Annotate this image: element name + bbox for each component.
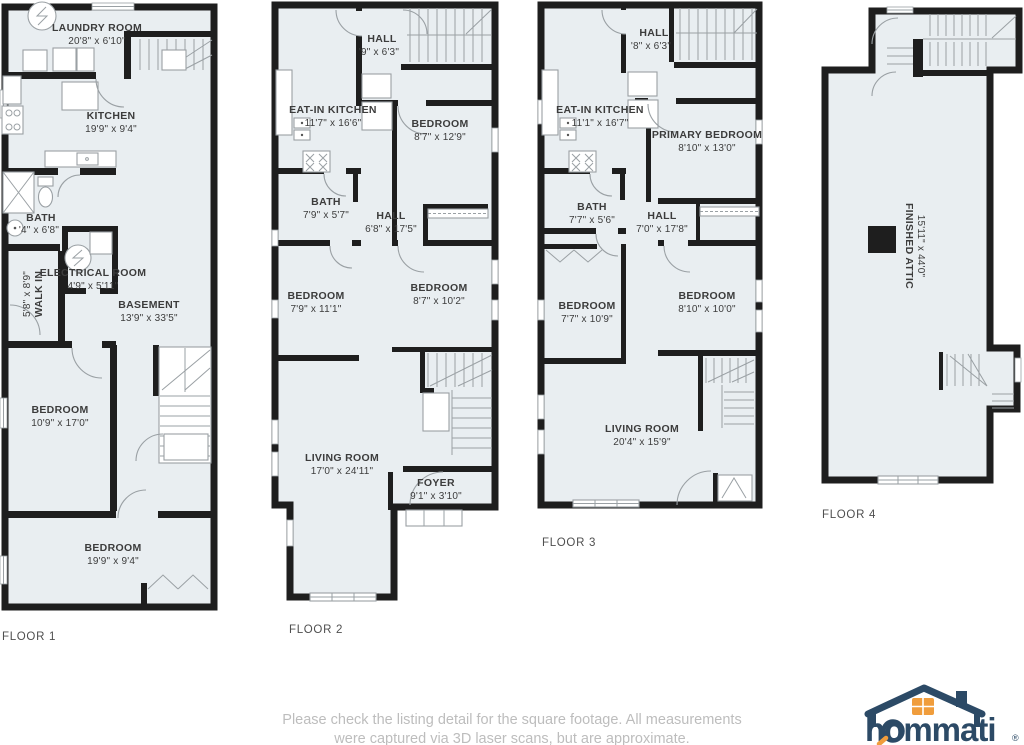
floor-3-plan: HALL '8" x 6'3" EAT-IN KITCHEN 11'1" x 1… bbox=[536, 0, 764, 512]
room-label: BEDROOM bbox=[410, 282, 467, 294]
floorplan-canvas: LAUNDRY ROOM 20'8" x 6'10" KITCHEN 19'9"… bbox=[0, 0, 1024, 745]
svg-text:8'10" x 10'0": 8'10" x 10'0" bbox=[678, 304, 736, 315]
room-label: BEDROOM bbox=[31, 404, 88, 416]
floor-4-plan: FINISHED ATTIC 15'11" x 44'0" bbox=[820, 6, 1024, 488]
room-label: BATH bbox=[577, 201, 607, 213]
room-label: BEDROOM bbox=[84, 542, 141, 554]
svg-text:7'7" x 10'9": 7'7" x 10'9" bbox=[561, 314, 613, 325]
svg-text:7'9" x 5'7": 7'9" x 5'7" bbox=[303, 210, 349, 221]
room-label: ELECTRICAL ROOM bbox=[40, 267, 147, 279]
floor-2-plan: HALL '9" x 6'3" EAT-IN KITCHEN 11'7" x 1… bbox=[270, 0, 502, 610]
floor-1-plan: LAUNDRY ROOM 20'8" x 6'10" KITCHEN 19'9"… bbox=[0, 0, 220, 624]
svg-text:FINISHED ATTIC: FINISHED ATTIC bbox=[903, 203, 915, 289]
room-label: LAUNDRY ROOM bbox=[52, 22, 142, 34]
room-label: HALL bbox=[376, 210, 406, 222]
stove-icon bbox=[2, 106, 23, 134]
room-label: HALL bbox=[647, 210, 677, 222]
svg-text:19'9" x 9'4": 19'9" x 9'4" bbox=[85, 124, 137, 135]
room-label: BATH bbox=[26, 212, 56, 224]
svg-text:7'7" x 5'6": 7'7" x 5'6" bbox=[569, 215, 615, 226]
svg-text:'8" x 6'3": '8" x 6'3" bbox=[631, 41, 671, 52]
room-label: BEDROOM bbox=[558, 300, 615, 312]
room-label: LIVING ROOM bbox=[605, 423, 679, 435]
shower-icon bbox=[3, 172, 34, 213]
room-label: EAT-IN KITCHEN bbox=[289, 104, 377, 116]
room-label: BEDROOM bbox=[678, 290, 735, 302]
room-label: BASEMENT bbox=[118, 299, 180, 311]
stove-icon bbox=[303, 151, 330, 172]
room-label: BATH bbox=[311, 196, 341, 208]
svg-text:13'9" x 33'5": 13'9" x 33'5" bbox=[120, 313, 178, 324]
room-label: LIVING ROOM bbox=[305, 452, 379, 464]
chimney bbox=[868, 226, 896, 253]
svg-text:5'8" x 8'9": 5'8" x 8'9" bbox=[22, 271, 33, 317]
registered-mark: ® bbox=[1012, 733, 1019, 743]
floor-2-caption: FLOOR 2 bbox=[289, 624, 343, 636]
floor-1-caption: FLOOR 1 bbox=[2, 631, 56, 643]
svg-text:8'7" x 10'2": 8'7" x 10'2" bbox=[413, 296, 465, 307]
svg-text:7'0" x 17'8": 7'0" x 17'8" bbox=[636, 224, 688, 235]
hommati-logo: hommati ® bbox=[860, 681, 1024, 745]
floor-1-mid-stairs bbox=[159, 347, 211, 463]
svg-text:'4" x 6'8": '4" x 6'8" bbox=[19, 225, 59, 236]
room-label: EAT-IN KITCHEN bbox=[556, 104, 644, 116]
room-label: PRIMARY BEDROOM bbox=[652, 129, 762, 141]
svg-text:11'1" x 16'7": 11'1" x 16'7" bbox=[572, 118, 629, 129]
svg-text:20'4" x 15'9": 20'4" x 15'9" bbox=[613, 437, 671, 448]
svg-text:17'0" x 24'11": 17'0" x 24'11" bbox=[311, 466, 374, 477]
room-label: BEDROOM bbox=[287, 290, 344, 302]
svg-text:19'9" x 9'4": 19'9" x 9'4" bbox=[87, 556, 139, 567]
svg-text:11'7" x 16'6": 11'7" x 16'6" bbox=[305, 118, 362, 129]
room-label: BEDROOM bbox=[411, 118, 468, 130]
stove-icon bbox=[569, 151, 596, 172]
room-label: KITCHEN bbox=[87, 110, 136, 122]
toilet-icon bbox=[38, 177, 53, 207]
room-label: HALL bbox=[367, 33, 397, 45]
svg-text:10'9" x 17'0": 10'9" x 17'0" bbox=[31, 418, 89, 429]
room-label: FOYER bbox=[417, 477, 455, 489]
floor-4-caption: FLOOR 4 bbox=[822, 509, 876, 521]
svg-text:7'9" x 11'1": 7'9" x 11'1" bbox=[291, 304, 342, 315]
svg-text:20'8" x 6'10": 20'8" x 6'10" bbox=[68, 36, 126, 47]
svg-text:'9" x 6'3": '9" x 6'3" bbox=[359, 47, 399, 58]
floor-3-caption: FLOOR 3 bbox=[542, 537, 596, 549]
svg-text:15'11" x 44'0": 15'11" x 44'0" bbox=[915, 215, 926, 278]
svg-text:6'8" x 17'5": 6'8" x 17'5" bbox=[365, 224, 417, 235]
svg-text:8'7" x 12'9": 8'7" x 12'9" bbox=[414, 132, 466, 143]
entry-steps bbox=[406, 510, 462, 526]
svg-text:8'10" x 13'0": 8'10" x 13'0" bbox=[678, 143, 736, 154]
room-label: FINISHED ATTIC 15'11" x 44'0" bbox=[903, 203, 926, 289]
svg-text:4'9" x 5'11": 4'9" x 5'11" bbox=[68, 281, 119, 292]
room-label: HALL bbox=[639, 27, 669, 39]
svg-text:9'1" x 3'10": 9'1" x 3'10" bbox=[410, 491, 462, 502]
